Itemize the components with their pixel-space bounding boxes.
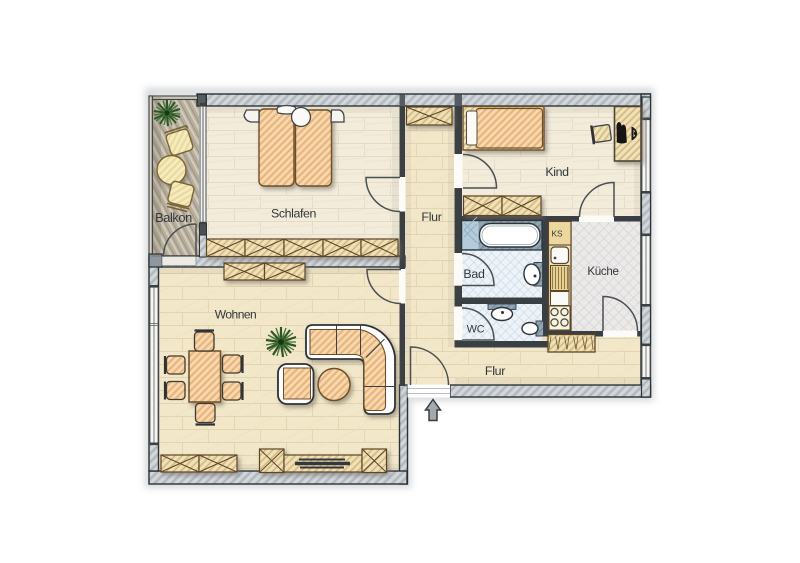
svg-text:Küche: Küche xyxy=(587,265,618,278)
svg-text:Schlafen: Schlafen xyxy=(271,207,317,221)
svg-text:Balkon: Balkon xyxy=(155,210,192,225)
svg-text:WC: WC xyxy=(467,324,485,336)
svg-text:Bad: Bad xyxy=(463,267,485,281)
svg-text:Flur: Flur xyxy=(421,210,441,224)
svg-text:Flur: Flur xyxy=(485,364,505,378)
svg-text:Wohnen: Wohnen xyxy=(215,308,256,322)
svg-text:Kind: Kind xyxy=(545,165,569,179)
svg-text:KS: KS xyxy=(551,229,563,239)
